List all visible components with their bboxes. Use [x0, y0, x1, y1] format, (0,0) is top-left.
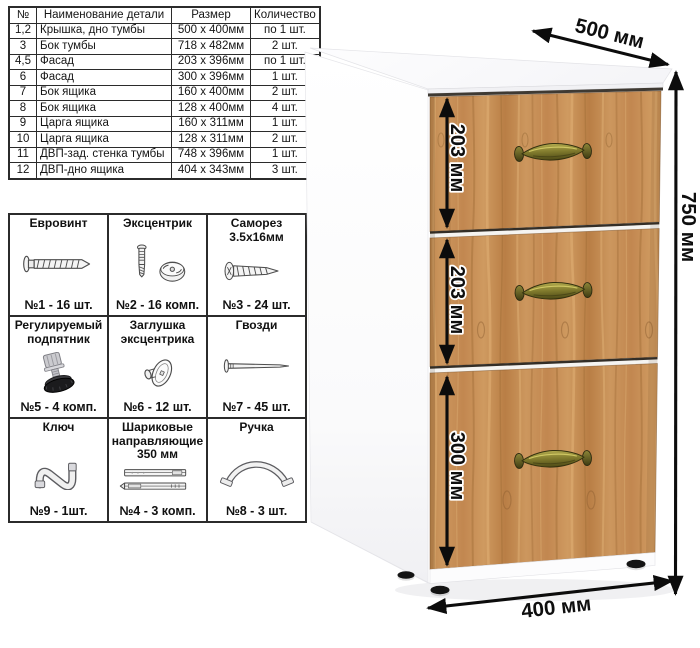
hardware-item-count: №2 - 16 комп. — [116, 298, 199, 312]
part-size: 404 х 343мм — [172, 163, 251, 179]
part-num: 11 — [9, 147, 37, 163]
part-size: 160 х 311мм — [172, 116, 251, 132]
table-row: 9Царга ящика160 х 311мм1 шт. — [9, 116, 320, 132]
hardware-item-title: Гвозди — [236, 319, 278, 333]
hardware-cell: Эксцентрик №2 - 16 комп. — [108, 214, 207, 316]
adjustable-foot-icon — [12, 346, 105, 400]
table-row: 3Бок тумбы718 х 482мм2 шт. — [9, 39, 320, 55]
part-size: 128 х 400мм — [172, 101, 251, 117]
drawer-slides-icon — [111, 462, 204, 504]
dim-depth-label: 500 мм — [573, 14, 647, 53]
part-num: 4,5 — [9, 54, 37, 70]
part-name: Крышка, дно тумбы — [37, 23, 172, 39]
hardware-item-title: Заглушка эксцентрика — [111, 319, 204, 346]
euro-screw-icon — [12, 231, 105, 299]
table-row: 11ДВП-зад. стенка тумбы748 х 396мм1 шт. — [9, 147, 320, 163]
hardware-item-title: Шариковые направляющие 350 мм — [111, 421, 204, 462]
hardware-cell: Заглушка эксцентрика №6 - 12 шт. — [108, 316, 207, 418]
hardware-cell: Саморез 3.5х16мм №3 - 24 шт. — [207, 214, 306, 316]
part-name: Бок тумбы — [37, 39, 172, 55]
part-size: 500 х 400мм — [172, 23, 251, 39]
hardware-cell: Ручка №8 - 3 шт. — [207, 418, 306, 522]
hardware-cell: Шариковые направляющие 350 мм — [108, 418, 207, 522]
hardware-item-count: №7 - 45 шт. — [222, 400, 290, 414]
parts-header-size: Размер — [172, 7, 251, 23]
cam-lock-icon — [111, 231, 204, 299]
hardware-cell: Евровинт №1 - 16 шт. — [9, 214, 108, 316]
dim-arrow-height — [676, 72, 677, 594]
hardware-item-count: №3 - 24 шт. — [222, 298, 290, 312]
part-num: 3 — [9, 39, 37, 55]
parts-header-name: Наименование детали — [37, 7, 172, 23]
part-num: 6 — [9, 70, 37, 86]
part-num: 9 — [9, 116, 37, 132]
part-num: 7 — [9, 85, 37, 101]
part-num: 1,2 — [9, 23, 37, 39]
hardware-item-count: №4 - 3 комп. — [119, 504, 195, 518]
part-size: 203 х 396мм — [172, 54, 251, 70]
table-row: 10Царга ящика128 х 311мм2 шт. — [9, 132, 320, 148]
hardware-item-title: Саморез 3.5х16мм — [210, 217, 303, 244]
table-row: 12ДВП-дно ящика404 х 343мм3 шт. — [9, 163, 320, 179]
table-row: 6Фасад300 х 396мм1 шт. — [9, 70, 320, 86]
assembly-sheet: № Наименование детали Размер Количество … — [0, 0, 700, 648]
dim-drawer-top-label: 203 мм — [446, 124, 468, 193]
nail-icon — [210, 333, 303, 401]
part-num: 10 — [9, 132, 37, 148]
hardware-item-title: Регулируемый подпятник — [12, 319, 105, 346]
hardware-item-title: Ключ — [43, 421, 75, 435]
part-size: 748 х 396мм — [172, 147, 251, 163]
hardware-cell: Ключ №9 - 1шт. — [9, 418, 108, 522]
part-name: Бок ящика — [37, 101, 172, 117]
cabinet-illustration: 203 мм 203 мм 300 мм 500 мм 750 мм 400 м… — [295, 0, 700, 648]
hardware-item-title: Евровинт — [30, 217, 88, 231]
self-tapping-screw-icon — [210, 244, 303, 298]
part-name: Царга ящика — [37, 132, 172, 148]
part-name: Бок ящика — [37, 85, 172, 101]
part-size: 300 х 396мм — [172, 70, 251, 86]
handle-icon — [210, 435, 303, 504]
hardware-cell: Гвозди №7 - 45 шт. — [207, 316, 306, 418]
table-row: 8Бок ящика128 х 400мм4 шт. — [9, 101, 320, 117]
part-size: 718 х 482мм — [172, 39, 251, 55]
hardware-item-count: №9 - 1шт. — [30, 504, 88, 518]
hardware-row: Регулируемый подпятник — [9, 316, 306, 418]
hardware-item-title: Эксцентрик — [123, 217, 192, 231]
hardware-item-count: №1 - 16 шт. — [24, 298, 92, 312]
part-size: 128 х 311мм — [172, 132, 251, 148]
hardware-item-count: №5 - 4 комп. — [20, 400, 96, 414]
table-row: 7Бок ящика160 х 400мм2 шт. — [9, 85, 320, 101]
part-name: Фасад — [37, 70, 172, 86]
table-row: 1,2Крышка, дно тумбы500 х 400ммпо 1 шт. — [9, 23, 320, 39]
hardware-table: Евровинт №1 - 16 шт. Эксцентрик — [8, 213, 307, 523]
part-num: 12 — [9, 163, 37, 179]
hardware-item-count: №8 - 3 шт. — [226, 504, 287, 518]
table-row: 4,5Фасад203 х 396ммпо 1 шт. — [9, 54, 320, 70]
part-num: 8 — [9, 101, 37, 117]
hardware-item-title: Ручка — [239, 421, 273, 435]
wood-edge-shade-left — [430, 97, 435, 571]
part-size: 160 х 400мм — [172, 85, 251, 101]
dim-drawer-middle-label: 203 мм — [446, 266, 468, 335]
cam-cover-icon — [111, 346, 204, 400]
hardware-row: Евровинт №1 - 16 шт. Эксцентрик — [9, 214, 306, 316]
part-name: ДВП-зад. стенка тумбы — [37, 147, 172, 163]
hardware-cell: Регулируемый подпятник — [9, 316, 108, 418]
hardware-item-count: №6 - 12 шт. — [123, 400, 191, 414]
dim-drawer-bottom-label: 300 мм — [446, 432, 468, 501]
cabinet-side-panel — [305, 52, 428, 583]
dim-height-label: 750 мм — [677, 192, 700, 262]
part-name: Царга ящика — [37, 116, 172, 132]
part-name: ДВП-дно ящика — [37, 163, 172, 179]
parts-table: № Наименование детали Размер Количество … — [8, 6, 321, 180]
hardware-row: Ключ №9 - 1шт. Шариковые направляющие 35… — [9, 418, 306, 522]
hex-key-icon — [12, 435, 105, 504]
parts-header-num: № — [9, 7, 37, 23]
part-name: Фасад — [37, 54, 172, 70]
parts-header-row: № Наименование детали Размер Количество — [9, 7, 320, 23]
